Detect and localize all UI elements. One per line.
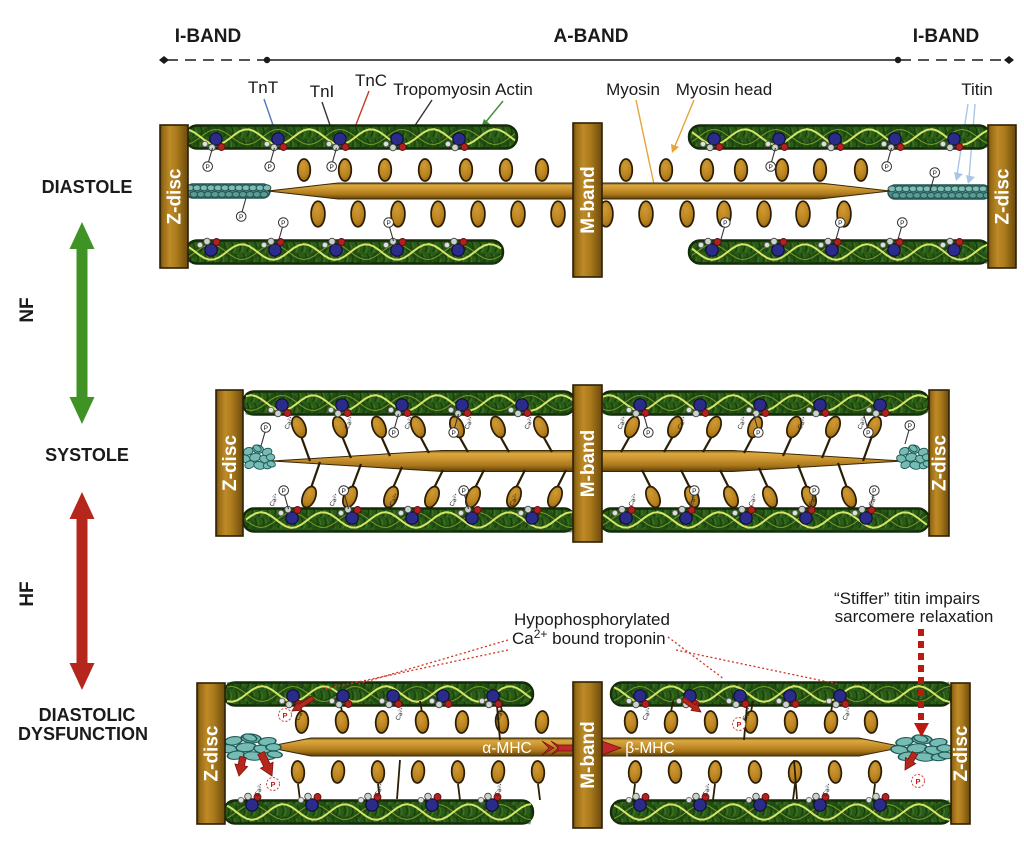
svg-text:M-band: M-band <box>578 166 599 234</box>
svg-text:I-BAND: I-BAND <box>913 26 980 47</box>
svg-text:Myosin: Myosin <box>606 80 660 99</box>
svg-text:Z-disc: Z-disc <box>165 168 186 224</box>
svg-text:Titin: Titin <box>961 80 993 99</box>
svg-text:Z-disc: Z-disc <box>951 725 972 781</box>
svg-text:M-band: M-band <box>578 430 599 498</box>
svg-text:“Stiffer” titin impairs: “Stiffer” titin impairs <box>834 589 980 608</box>
svg-text:M-band: M-band <box>578 721 599 789</box>
svg-text:HF: HF <box>17 581 38 606</box>
svg-text:A-BAND: A-BAND <box>554 26 629 47</box>
svg-text:Z-disc: Z-disc <box>220 435 241 491</box>
svg-text:sarcomere relaxation: sarcomere relaxation <box>835 607 994 626</box>
svg-text:Tropomyosin: Tropomyosin <box>393 80 491 99</box>
svg-text:SYSTOLE: SYSTOLE <box>45 445 129 465</box>
svg-text:NF: NF <box>17 297 38 322</box>
svg-text:TnC: TnC <box>355 71 387 90</box>
svg-text:α-MHC: α-MHC <box>482 740 531 757</box>
svg-text:I-BAND: I-BAND <box>175 26 242 47</box>
svg-text:TnT: TnT <box>248 78 278 97</box>
svg-text:Actin: Actin <box>495 80 533 99</box>
svg-text:DYSFUNCTION: DYSFUNCTION <box>18 724 148 744</box>
svg-text:Myosin head: Myosin head <box>676 80 772 99</box>
svg-text:β-MHC: β-MHC <box>625 740 674 757</box>
svg-text:DIASTOLIC: DIASTOLIC <box>39 705 136 725</box>
svg-text:TnI: TnI <box>310 82 335 101</box>
svg-text:Z-disc: Z-disc <box>202 725 223 781</box>
svg-text:Z-disc: Z-disc <box>930 435 951 491</box>
svg-text:DIASTOLE: DIASTOLE <box>42 177 133 197</box>
svg-text:Z-disc: Z-disc <box>993 168 1014 224</box>
